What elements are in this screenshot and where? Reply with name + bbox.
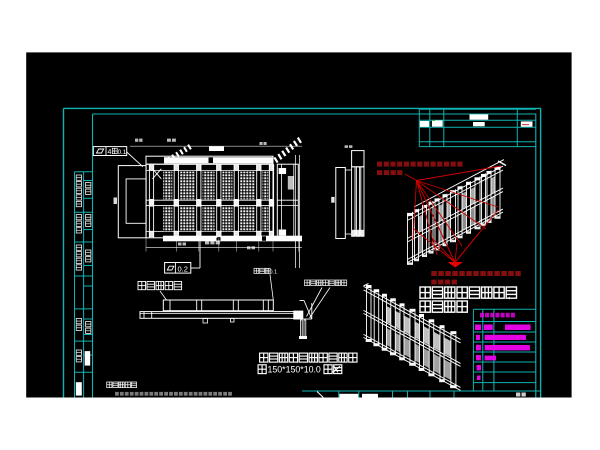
svg-text:4: 4	[108, 149, 112, 156]
svg-text:150*150*10.0: 150*150*10.0	[268, 365, 321, 375]
svg-text:0.1: 0.1	[118, 149, 127, 156]
svg-text:0.2: 0.2	[178, 265, 188, 274]
svg-text:,: ,	[508, 290, 511, 301]
svg-text:0.1: 0.1	[270, 270, 278, 276]
